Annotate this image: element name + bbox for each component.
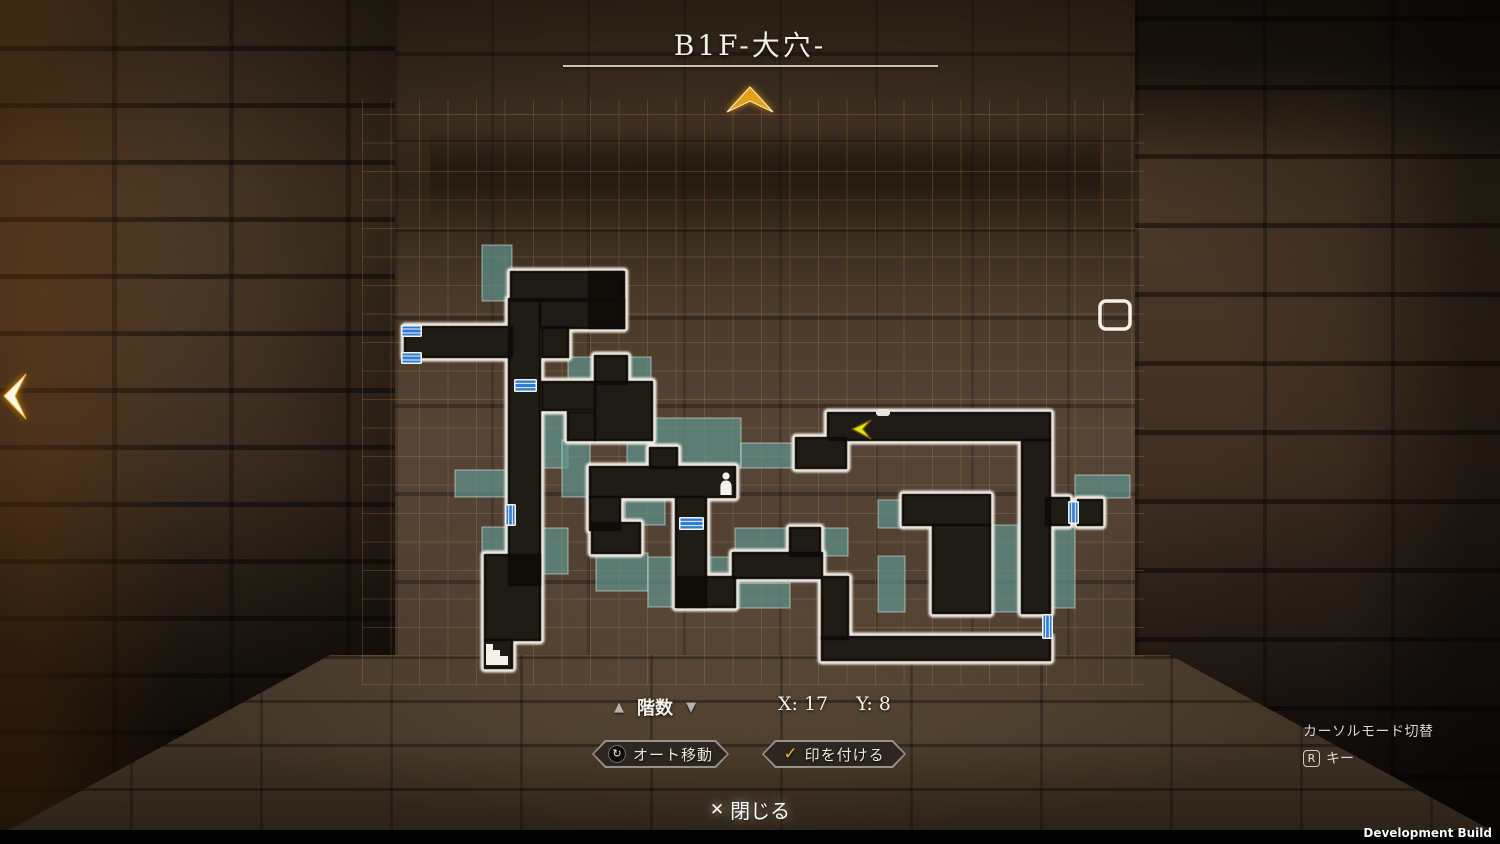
door-marker (1068, 501, 1079, 524)
close-icon: ✕ (710, 800, 724, 820)
door-marker (679, 517, 704, 530)
corridor-segment (592, 523, 640, 553)
auto-move-label: オート移動 (633, 744, 713, 765)
corridor-segment (542, 382, 595, 410)
corridor-segment (595, 382, 652, 440)
corridor-segment (796, 438, 846, 468)
explored-room-cell (1075, 475, 1130, 498)
pad-icon: ↻ (608, 745, 626, 763)
door-marker (1042, 614, 1053, 639)
corridor-segment (568, 412, 595, 440)
corridor-segment (822, 637, 1050, 660)
door-marker (401, 325, 422, 337)
coordinate-x: X: 17 (778, 693, 828, 715)
corridor-segment (590, 467, 735, 497)
corridor-segment (540, 299, 624, 328)
explored-room-cell (455, 470, 510, 497)
cursor-coordinates: X: 17 Y: 8 (778, 693, 891, 715)
corridor-segment (903, 495, 990, 525)
coordinate-y: Y: 8 (856, 693, 891, 715)
check-icon: ✓ (783, 744, 797, 764)
game-screen: B1F-大穴- ▲ 階数 ▼ X: 17 Y: 8 ↻ オート移動 ✓ 印を付け… (0, 0, 1500, 844)
door-marker (505, 504, 516, 526)
corridor-segment (650, 448, 677, 468)
cursor-mode-label: カーソルモード切替 (1303, 721, 1434, 741)
floor-selector: ▲ 階数 ▼ (590, 694, 720, 720)
corridor-segment (790, 528, 820, 556)
corridor-segment (1046, 498, 1069, 525)
close-button[interactable]: ✕ 閉じる (0, 795, 1500, 824)
corridor-segment (595, 356, 627, 384)
key-suffix-label: キー (1326, 748, 1354, 768)
floor-down-button[interactable]: ▼ (686, 700, 696, 715)
wall-gap-marker (876, 409, 890, 416)
explored-room-cell (596, 553, 648, 591)
floor-title-text: B1F-大穴- (674, 29, 826, 62)
letterbox-strip (0, 830, 1500, 844)
target-box-marker (1100, 301, 1130, 329)
explored-room-cell (878, 556, 905, 612)
corridor-segment (678, 577, 735, 607)
corridor-segment (933, 525, 990, 613)
floor-selector-label: 階数 (637, 694, 673, 720)
mark-button-label: 印を付ける (805, 744, 885, 765)
corridor-segment (485, 555, 540, 640)
corridor-segment (509, 299, 540, 585)
close-button-label: 閉じる (730, 795, 790, 824)
scroll-up-chevron[interactable] (727, 87, 773, 112)
floor-up-button[interactable]: ▲ (614, 700, 624, 715)
explored-room-cell (741, 443, 796, 468)
auto-move-button[interactable]: ↻ オート移動 (592, 740, 729, 768)
development-build-label: Development Build (1363, 826, 1492, 840)
corridor-segment (542, 327, 568, 357)
dungeon-map[interactable] (0, 0, 1500, 844)
explored-room-cell (735, 583, 790, 608)
corridor-segment (822, 577, 848, 639)
corridor-segment (1078, 500, 1102, 525)
mark-button[interactable]: ✓ 印を付ける (762, 740, 906, 768)
corridor-segment (1022, 440, 1050, 613)
cursor-mode-hint: カーソルモード切替 R キー (1303, 721, 1434, 768)
title-divider (563, 65, 938, 67)
door-marker (401, 352, 422, 364)
scroll-left-chevron[interactable] (4, 374, 26, 419)
page-title: B1F-大穴- (0, 24, 1500, 64)
door-marker (514, 379, 537, 392)
r-key-icon: R (1303, 750, 1320, 767)
